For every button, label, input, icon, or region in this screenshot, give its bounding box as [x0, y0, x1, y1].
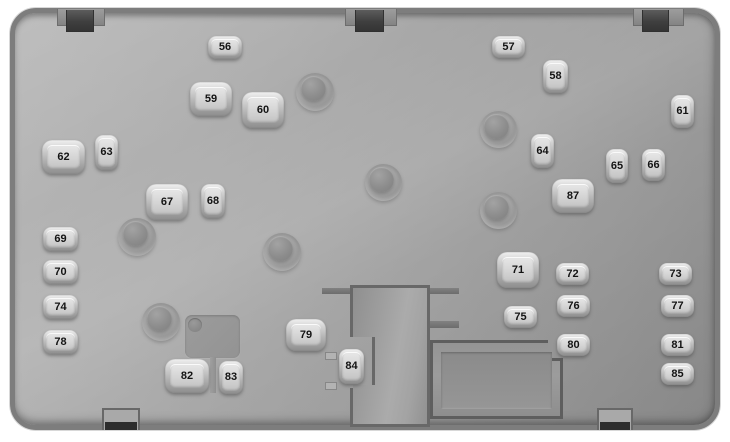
fuse-87: 87	[552, 179, 594, 213]
fuse-label: 85	[671, 369, 683, 380]
bolt-post-icon	[480, 111, 517, 148]
fuse-73: 73	[659, 263, 692, 285]
fuse-80: 80	[557, 334, 590, 356]
fuse-77: 77	[661, 295, 694, 317]
fuse-82: 82	[165, 359, 209, 393]
fuse-78: 78	[43, 330, 78, 354]
fuse-label: 82	[181, 371, 193, 382]
fuse-56: 56	[208, 36, 242, 59]
fuse-label: 65	[611, 161, 623, 172]
fuse-75: 75	[504, 306, 537, 328]
top-mount-tab-icon	[355, 10, 384, 32]
fuse-66: 66	[642, 149, 665, 181]
fuse-label: 78	[54, 337, 66, 348]
fuse-58: 58	[543, 60, 568, 93]
panel-sheen	[15, 13, 715, 425]
connector-clip	[325, 382, 337, 390]
fuse-60: 60	[242, 92, 284, 128]
fuse-label: 81	[671, 340, 683, 351]
fuse-63: 63	[95, 135, 118, 170]
fuse-label: 84	[345, 361, 357, 372]
fuse-box-diagram: 56 57 58 59 60 61 62 63 64 65 66 67 68 6…	[0, 0, 730, 442]
fuse-label: 63	[100, 147, 112, 158]
bolt-post-icon	[296, 73, 334, 111]
fuse-68: 68	[201, 184, 225, 218]
fuse-84: 84	[339, 349, 364, 384]
fuse-57: 57	[492, 36, 525, 58]
connector-prong	[430, 288, 459, 294]
bottom-mount-tab	[597, 408, 633, 430]
fuse-85: 85	[661, 363, 694, 385]
fuse-label: 57	[502, 42, 514, 53]
fuse-label: 64	[536, 146, 548, 157]
top-mount-tab-icon	[66, 10, 94, 32]
fuse-83: 83	[219, 361, 243, 394]
fuse-65: 65	[606, 149, 628, 183]
fuse-label: 70	[54, 267, 66, 278]
bolt-post-icon	[142, 303, 180, 341]
fuse-label: 75	[514, 312, 526, 323]
fuse-label: 80	[567, 340, 579, 351]
fuse-label: 73	[669, 269, 681, 280]
bolt-post-icon	[263, 233, 301, 271]
fuse-label: 61	[676, 106, 688, 117]
fuse-79: 79	[286, 319, 326, 351]
fuse-70: 70	[43, 260, 78, 284]
divider-bar	[210, 357, 216, 393]
fuse-label: 69	[54, 234, 66, 245]
fuse-69: 69	[43, 227, 78, 251]
fuse-label: 76	[567, 301, 579, 312]
fuse-label: 77	[671, 301, 683, 312]
fuse-64: 64	[531, 134, 554, 168]
bottom-mount-tab-bar	[600, 422, 630, 430]
connector-clip	[325, 352, 337, 360]
fuse-label: 62	[57, 152, 69, 163]
fuse-59: 59	[190, 82, 232, 116]
bottom-mount-tab	[102, 408, 140, 430]
fuse-label: 74	[54, 302, 66, 313]
fuse-panel	[10, 8, 720, 430]
fuse-76: 76	[557, 295, 590, 317]
bolt-post-icon	[480, 192, 517, 229]
fuse-label: 71	[512, 265, 524, 276]
bolt-post-icon	[118, 218, 156, 256]
fuse-71: 71	[497, 252, 539, 288]
fuse-label: 83	[225, 372, 237, 383]
fuse-label: 67	[161, 197, 173, 208]
fuse-81: 81	[661, 334, 694, 356]
fuse-label: 87	[567, 191, 579, 202]
fuse-label: 60	[257, 105, 269, 116]
fuse-label: 56	[219, 42, 231, 53]
top-mount-tab-icon	[642, 10, 669, 32]
connector-prong	[430, 321, 459, 328]
bolt-post-icon	[365, 164, 402, 201]
fuse-label: 59	[205, 94, 217, 105]
fuse-label: 58	[549, 71, 561, 82]
bottom-mount-tab-bar	[105, 422, 137, 430]
fuse-67: 67	[146, 184, 188, 220]
connector-prong	[322, 288, 350, 294]
fuse-74: 74	[43, 295, 78, 319]
fuse-label: 72	[566, 269, 578, 280]
fuse-label: 79	[300, 330, 312, 341]
fuse-62: 62	[42, 140, 85, 174]
fuse-72: 72	[556, 263, 589, 285]
fuse-61: 61	[671, 95, 694, 128]
fuse-label: 68	[207, 196, 219, 207]
fuse-label: 66	[647, 160, 659, 171]
rivet-icon	[188, 318, 202, 332]
relay-block-well	[441, 352, 552, 409]
